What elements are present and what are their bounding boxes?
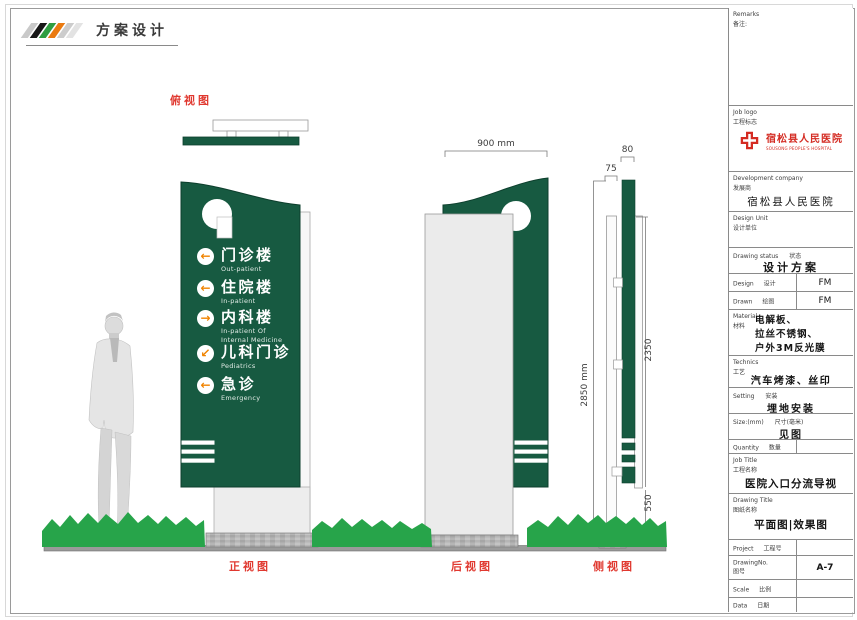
dimension-bracket [605, 176, 617, 181]
sign-entry-en: Emergency [221, 394, 260, 403]
drawing-title-value: 平面图|效果图 [729, 517, 853, 532]
sign-entry-en: Out-patient [221, 265, 274, 274]
technics-label-en: Technics [733, 358, 758, 368]
medical-cross-icon [739, 130, 760, 151]
drawing-status-value: 设计方案 [729, 259, 853, 274]
titleblock-row-data: Data 日期 [729, 598, 853, 612]
hospital-name-en: SOUSONG PEOPLE'S HOSPITAL [766, 146, 843, 151]
data-value [796, 598, 853, 612]
setting-label-en: Setting [733, 393, 754, 400]
design-label-en: Design [733, 280, 754, 287]
titleblock-row-drawing-status: Drawing status 状态 设计方案 [729, 248, 853, 274]
front-base-plate [206, 533, 318, 547]
titleblock-row-job-title: Job Title 工程名称 医院入口分流导视 [729, 454, 853, 494]
titleblock-row-size: Size:(mm) 尺寸(毫米) 见图 [729, 414, 853, 440]
design-unit-label-en: Design Unit [733, 214, 768, 224]
sign-entry-zh: 住院楼 [221, 280, 274, 296]
sign-entry-en: In-patient [221, 297, 274, 306]
titleblock-row-scale: Scale 比例 [729, 580, 853, 598]
panel-stripe [515, 441, 548, 445]
panel-stripe [182, 459, 215, 463]
drawing-no-label-en: DrawingNo. [733, 558, 768, 568]
titleblock-row-setting: Setting 安装 埋地安装 [729, 388, 853, 414]
data-label-zh: 日期 [757, 603, 769, 610]
titleblock-row-drawing-title: Drawing Title 图纸名称 平面图|效果图 [729, 494, 853, 540]
front-pole [300, 212, 310, 533]
title-block: Remarks 备注: Job logo 工程标志 宿松县人民医院 SOUSON… [728, 8, 853, 612]
sign-entry-en: Pediatrics [221, 362, 291, 371]
setting-value: 埋地安装 [729, 400, 853, 414]
panel-stripe [515, 450, 548, 454]
titleblock-row-drawn: Drawn 绘图 FM [729, 292, 853, 310]
drawing-no-value: A-7 [796, 556, 853, 579]
data-label-en: Data [733, 603, 747, 610]
size-label-en: Size:(mm) [733, 419, 764, 426]
remarks-label-en: Remarks [733, 10, 759, 20]
remarks-label-zh: 备注: [733, 20, 759, 30]
person-silhouette [89, 313, 133, 538]
development-company-value: 宿松县人民医院 [729, 194, 853, 209]
development-company-label-en: Development company [733, 174, 803, 184]
development-company-label-zh: 发展商 [733, 184, 803, 194]
side-sign-panel [622, 180, 635, 483]
project-label-zh: 工程号 [763, 545, 781, 552]
view-label-back: 后视图 [451, 559, 493, 573]
front-pedestal [214, 487, 310, 534]
drawing-no-label-zh: 图号 [733, 568, 768, 578]
panel-stripe [515, 459, 548, 463]
titleblock-row-quantity: Quantity 数量 [729, 440, 853, 454]
titleblock-row-material: Material 材料 电解板、 拉丝不锈钢、 户外3M反光膜 [729, 310, 853, 356]
dimension-900: 900 mm [445, 139, 547, 157]
material-value: 电解板、 拉丝不锈钢、 户外3M反光膜 [755, 314, 849, 355]
size-label-zh: 尺寸(毫米) [775, 419, 804, 426]
connector [614, 360, 623, 369]
drawing-title-label-zh: 图纸名称 [733, 506, 773, 516]
titleblock-row-project: Project 工程号 [729, 540, 853, 556]
titleblock-row-job-logo: Job logo 工程标志 宿松县人民医院 SOUSONG PEOPLE'S H… [729, 106, 853, 172]
sign-entry: ← 住院楼 In-patient [197, 280, 274, 306]
sign-entry: ← 急诊 Emergency [197, 377, 260, 403]
view-label-top: 俯视图 [170, 93, 212, 107]
size-value: 见图 [729, 426, 853, 440]
job-logo-label-en: Job logo [733, 108, 757, 118]
view-label-side: 侧视图 [593, 559, 635, 573]
back-base-plate [421, 535, 518, 547]
setting-label-zh: 安装 [765, 393, 777, 400]
project-value [796, 540, 853, 555]
sign-entry-zh: 急诊 [221, 377, 260, 393]
arrow-left-icon: ← [197, 280, 214, 297]
dimension-2850: 2850 mm [580, 363, 590, 406]
titleblock-row-design-unit: Design Unit 设计单位 [729, 212, 853, 248]
titleblock-row-design: Design 设计 FM [729, 274, 853, 292]
project-label-en: Project [733, 545, 754, 552]
design-label-zh: 设计 [764, 280, 776, 287]
panel-stripe [182, 441, 215, 445]
quantity-label-zh: 数量 [769, 444, 781, 451]
arrow-down-left-icon: ↙ [197, 345, 214, 362]
drawn-label-en: Drawn [733, 298, 752, 305]
dimension-2350: 2350 [644, 338, 654, 361]
material-label-en: Material [733, 312, 757, 322]
drawing-title-label-en: Drawing Title [733, 496, 773, 506]
dimension-bracket [621, 157, 634, 162]
connector [612, 467, 622, 476]
top-view [183, 120, 308, 145]
arrow-right-icon: → [197, 310, 214, 327]
drawing-canvas: 900 mm 80 75 2850 mm 2350 550 俯视图 正视图 后视… [0, 0, 730, 620]
sign-entry: ↙ 儿科门诊 Pediatrics [197, 345, 291, 371]
job-title-value: 医院入口分流导视 [729, 476, 853, 491]
material-label-zh: 材料 [733, 322, 757, 332]
dimension-80: 80 [622, 145, 634, 155]
hospital-logo: 宿松县人民医院 SOUSONG PEOPLE'S HOSPITAL [729, 130, 853, 151]
panel-stripe [182, 450, 215, 454]
dimension-550: 550 [644, 494, 654, 511]
titleblock-row-development-company: Development company 发展商 宿松县人民医院 [729, 172, 853, 212]
drawn-value: FM [796, 292, 853, 309]
back-pole-panel [425, 214, 513, 535]
design-unit-label-zh: 设计单位 [733, 224, 768, 234]
hospital-name-zh: 宿松县人民医院 [766, 130, 843, 145]
job-title-label-en: Job Title [733, 456, 757, 466]
job-title-label-zh: 工程名称 [733, 466, 757, 476]
svg-text:900 mm: 900 mm [477, 139, 515, 149]
sign-entry: ← 门诊楼 Out-patient [197, 248, 274, 274]
titleblock-row-technics: Technics 工艺 汽车烤漆、丝印 [729, 356, 853, 388]
side-back-panel [635, 216, 643, 488]
arrow-left-icon: ← [197, 377, 214, 394]
design-sheet: 方案设计 [0, 0, 857, 620]
titleblock-row-remarks: Remarks 备注: [729, 8, 853, 106]
sign-entry-zh: 内科楼 [221, 310, 282, 326]
dimension-line [594, 181, 607, 546]
sign-entry-zh: 儿科门诊 [221, 345, 291, 361]
grass [42, 512, 667, 547]
scale-label-en: Scale [733, 586, 749, 593]
connector [614, 278, 623, 287]
view-label-front: 正视图 [229, 559, 271, 573]
titleblock-row-drawing-no: DrawingNo. 图号 A-7 [729, 556, 853, 580]
arrow-left-icon: ← [197, 248, 214, 265]
drawn-label-zh: 绘图 [762, 298, 774, 305]
back-view [421, 178, 548, 547]
design-value: FM [796, 274, 853, 291]
sign-entry: → 内科楼 In-patient Of Internal Medicine [197, 310, 282, 345]
scale-label-zh: 比例 [759, 586, 771, 593]
technics-value: 汽车烤漆、丝印 [729, 372, 853, 387]
dimension-75: 75 [605, 164, 616, 174]
side-view [594, 157, 649, 548]
quantity-label-en: Quantity [733, 444, 759, 451]
scale-value [796, 580, 853, 597]
job-logo-label-zh: 工程标志 [733, 118, 757, 128]
sign-entry-zh: 门诊楼 [221, 248, 274, 264]
side-pole [607, 216, 617, 532]
panel-hole-tab [217, 217, 232, 238]
quantity-value [796, 440, 853, 453]
